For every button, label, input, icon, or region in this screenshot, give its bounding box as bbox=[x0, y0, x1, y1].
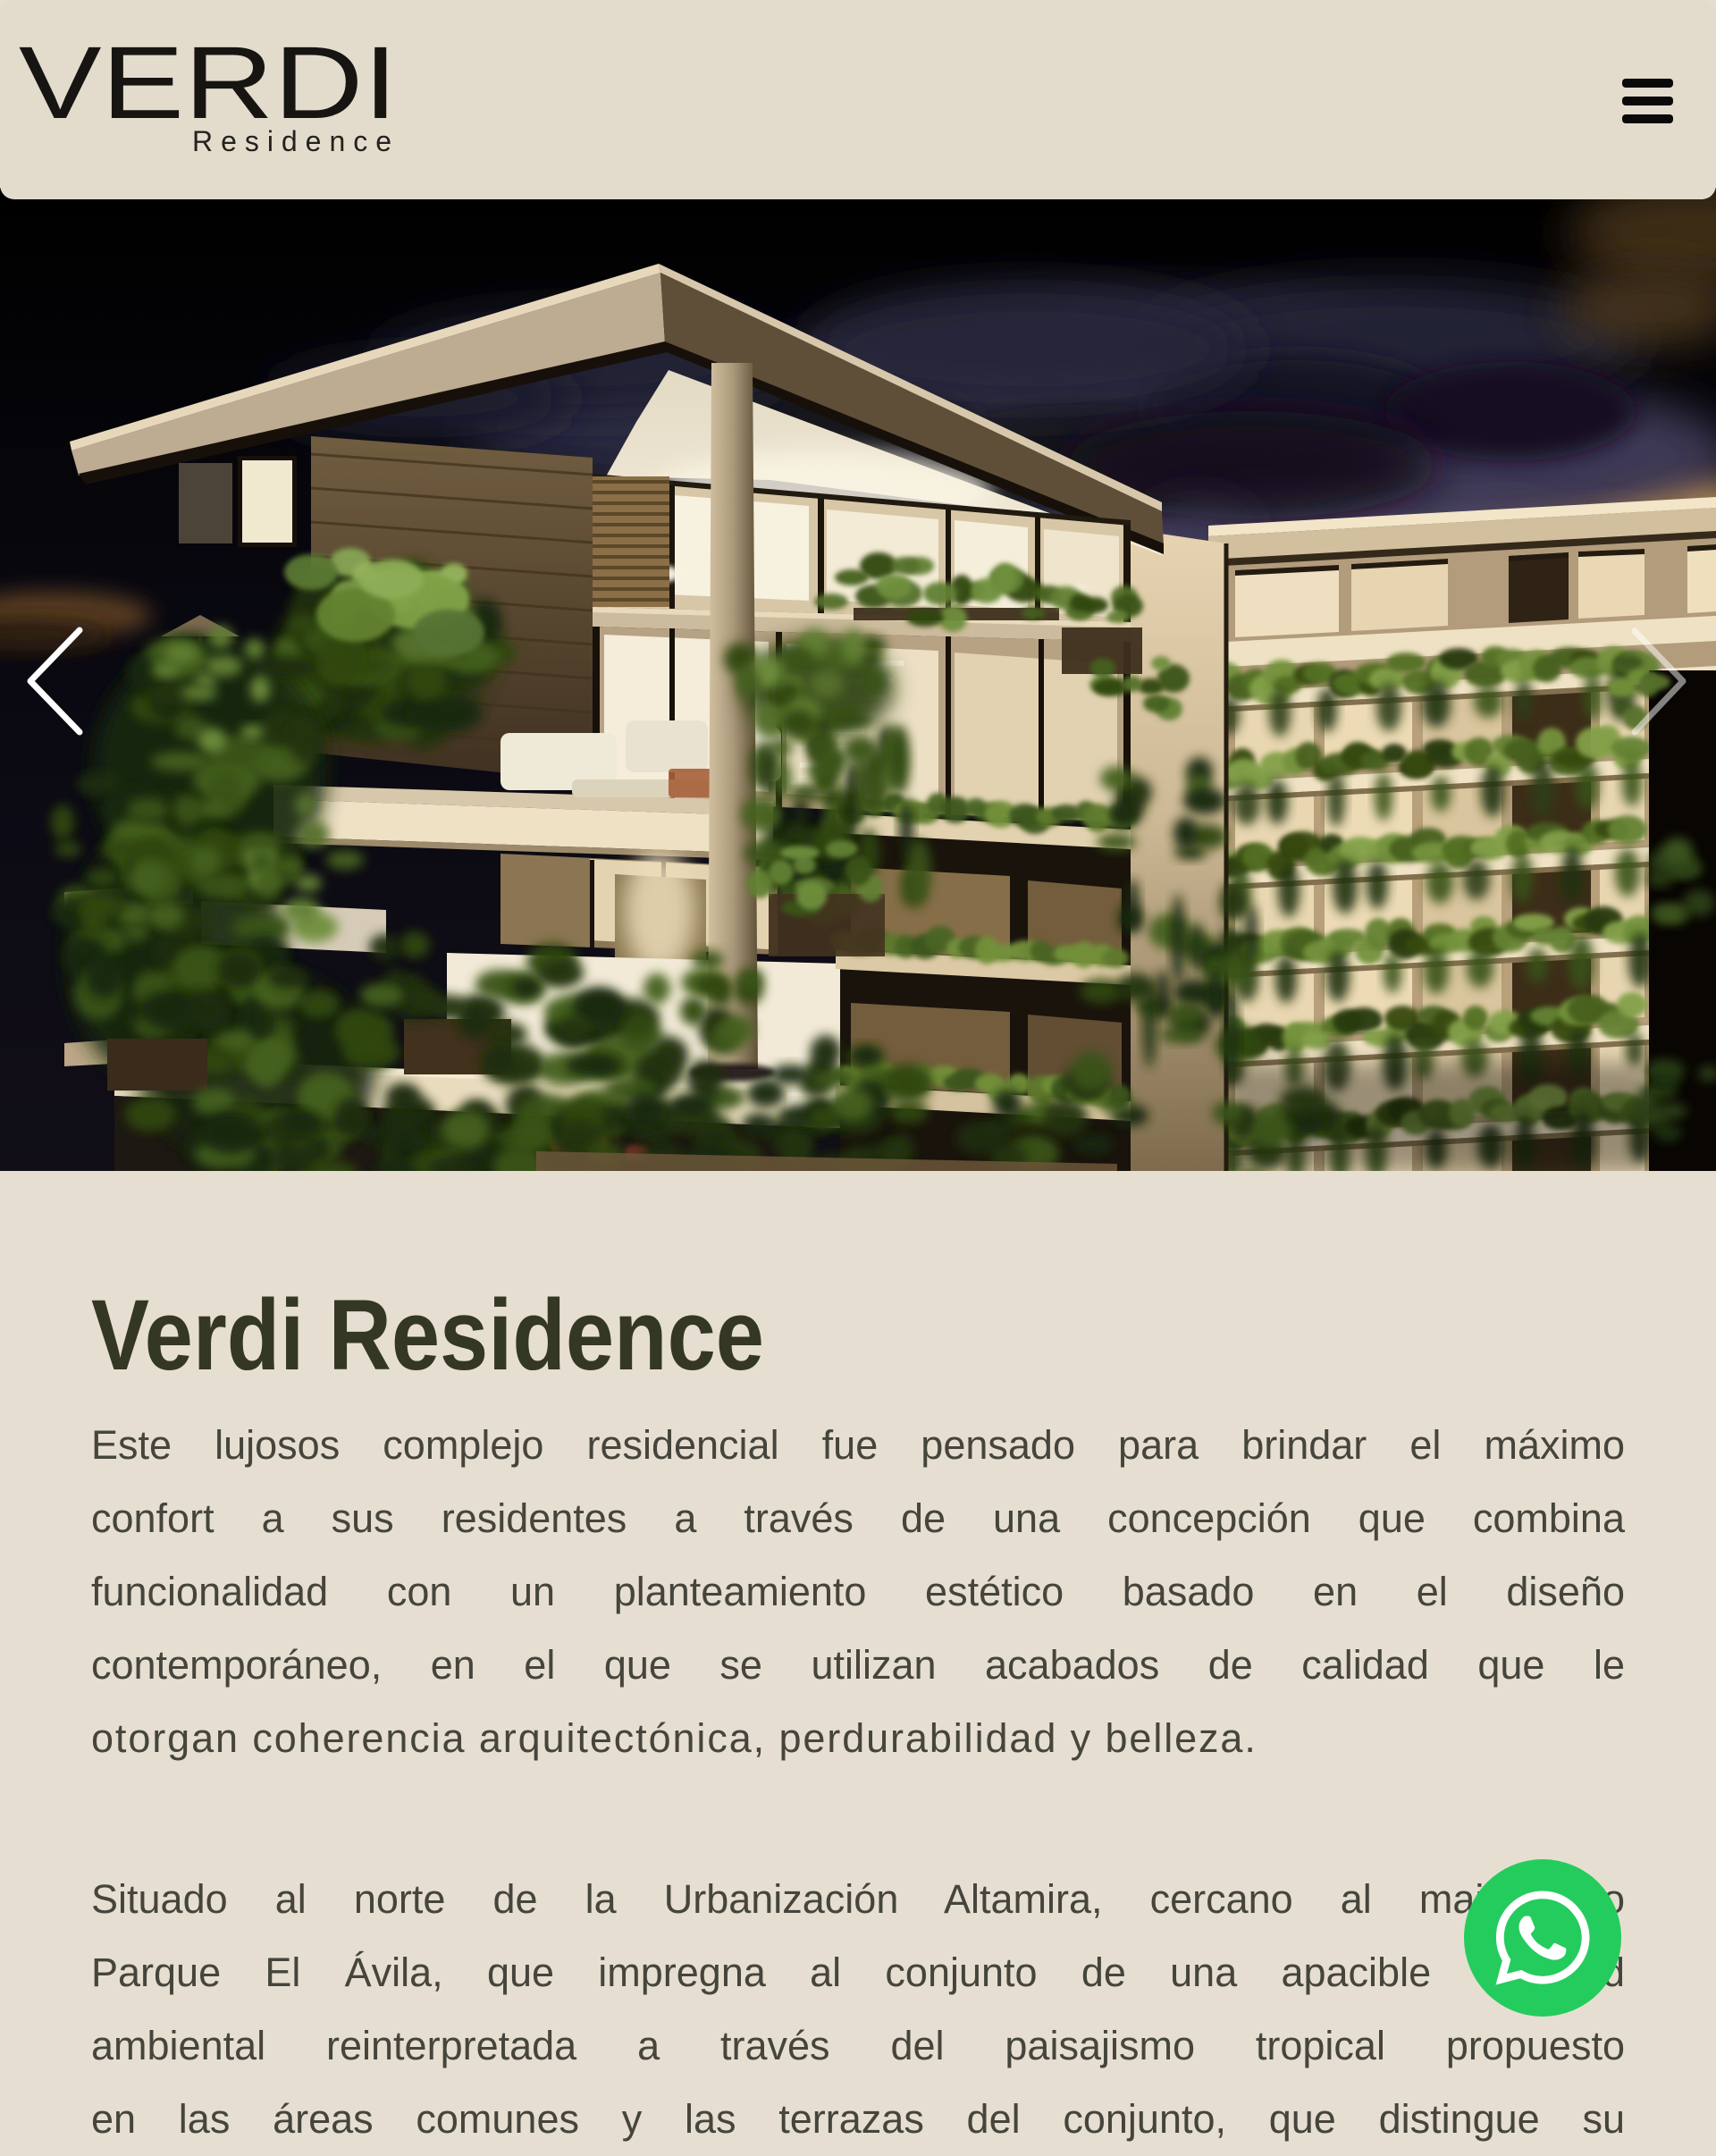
svg-text:VERDI: VERDI bbox=[19, 26, 398, 140]
svg-text:Verdi Residence: Verdi Residence bbox=[91, 1279, 764, 1391]
svg-text:Residence: Residence bbox=[192, 125, 391, 157]
